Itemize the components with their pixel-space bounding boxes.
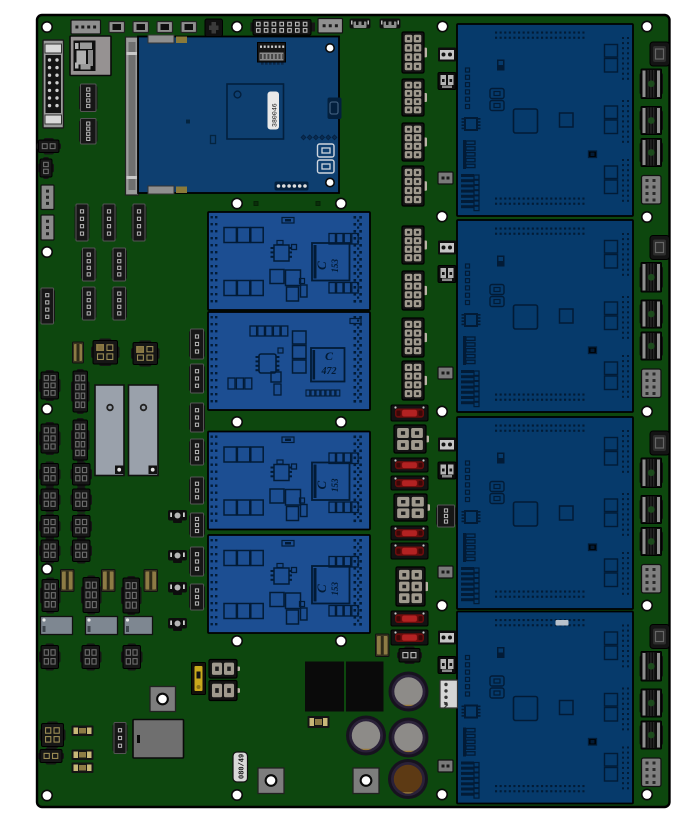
svg-text:380046: 380046 <box>272 103 279 127</box>
svg-text:080/49: 080/49 <box>239 754 247 779</box>
